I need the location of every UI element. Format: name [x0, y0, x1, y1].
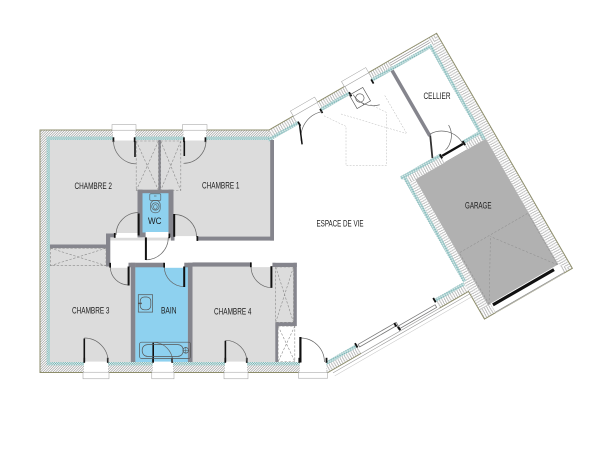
svg-text:WC: WC	[148, 216, 162, 226]
svg-text:GARAGE: GARAGE	[465, 201, 492, 211]
svg-text:ESPACE DE VIE: ESPACE DE VIE	[317, 219, 364, 229]
svg-text:CELLIER: CELLIER	[424, 91, 451, 101]
svg-text:CHAMBRE 4: CHAMBRE 4	[214, 307, 252, 317]
svg-text:CHAMBRE 1: CHAMBRE 1	[202, 181, 240, 191]
svg-text:CHAMBRE 3: CHAMBRE 3	[72, 306, 110, 316]
svg-text:BAIN: BAIN	[161, 306, 177, 316]
svg-text:CHAMBRE 2: CHAMBRE 2	[75, 181, 113, 191]
